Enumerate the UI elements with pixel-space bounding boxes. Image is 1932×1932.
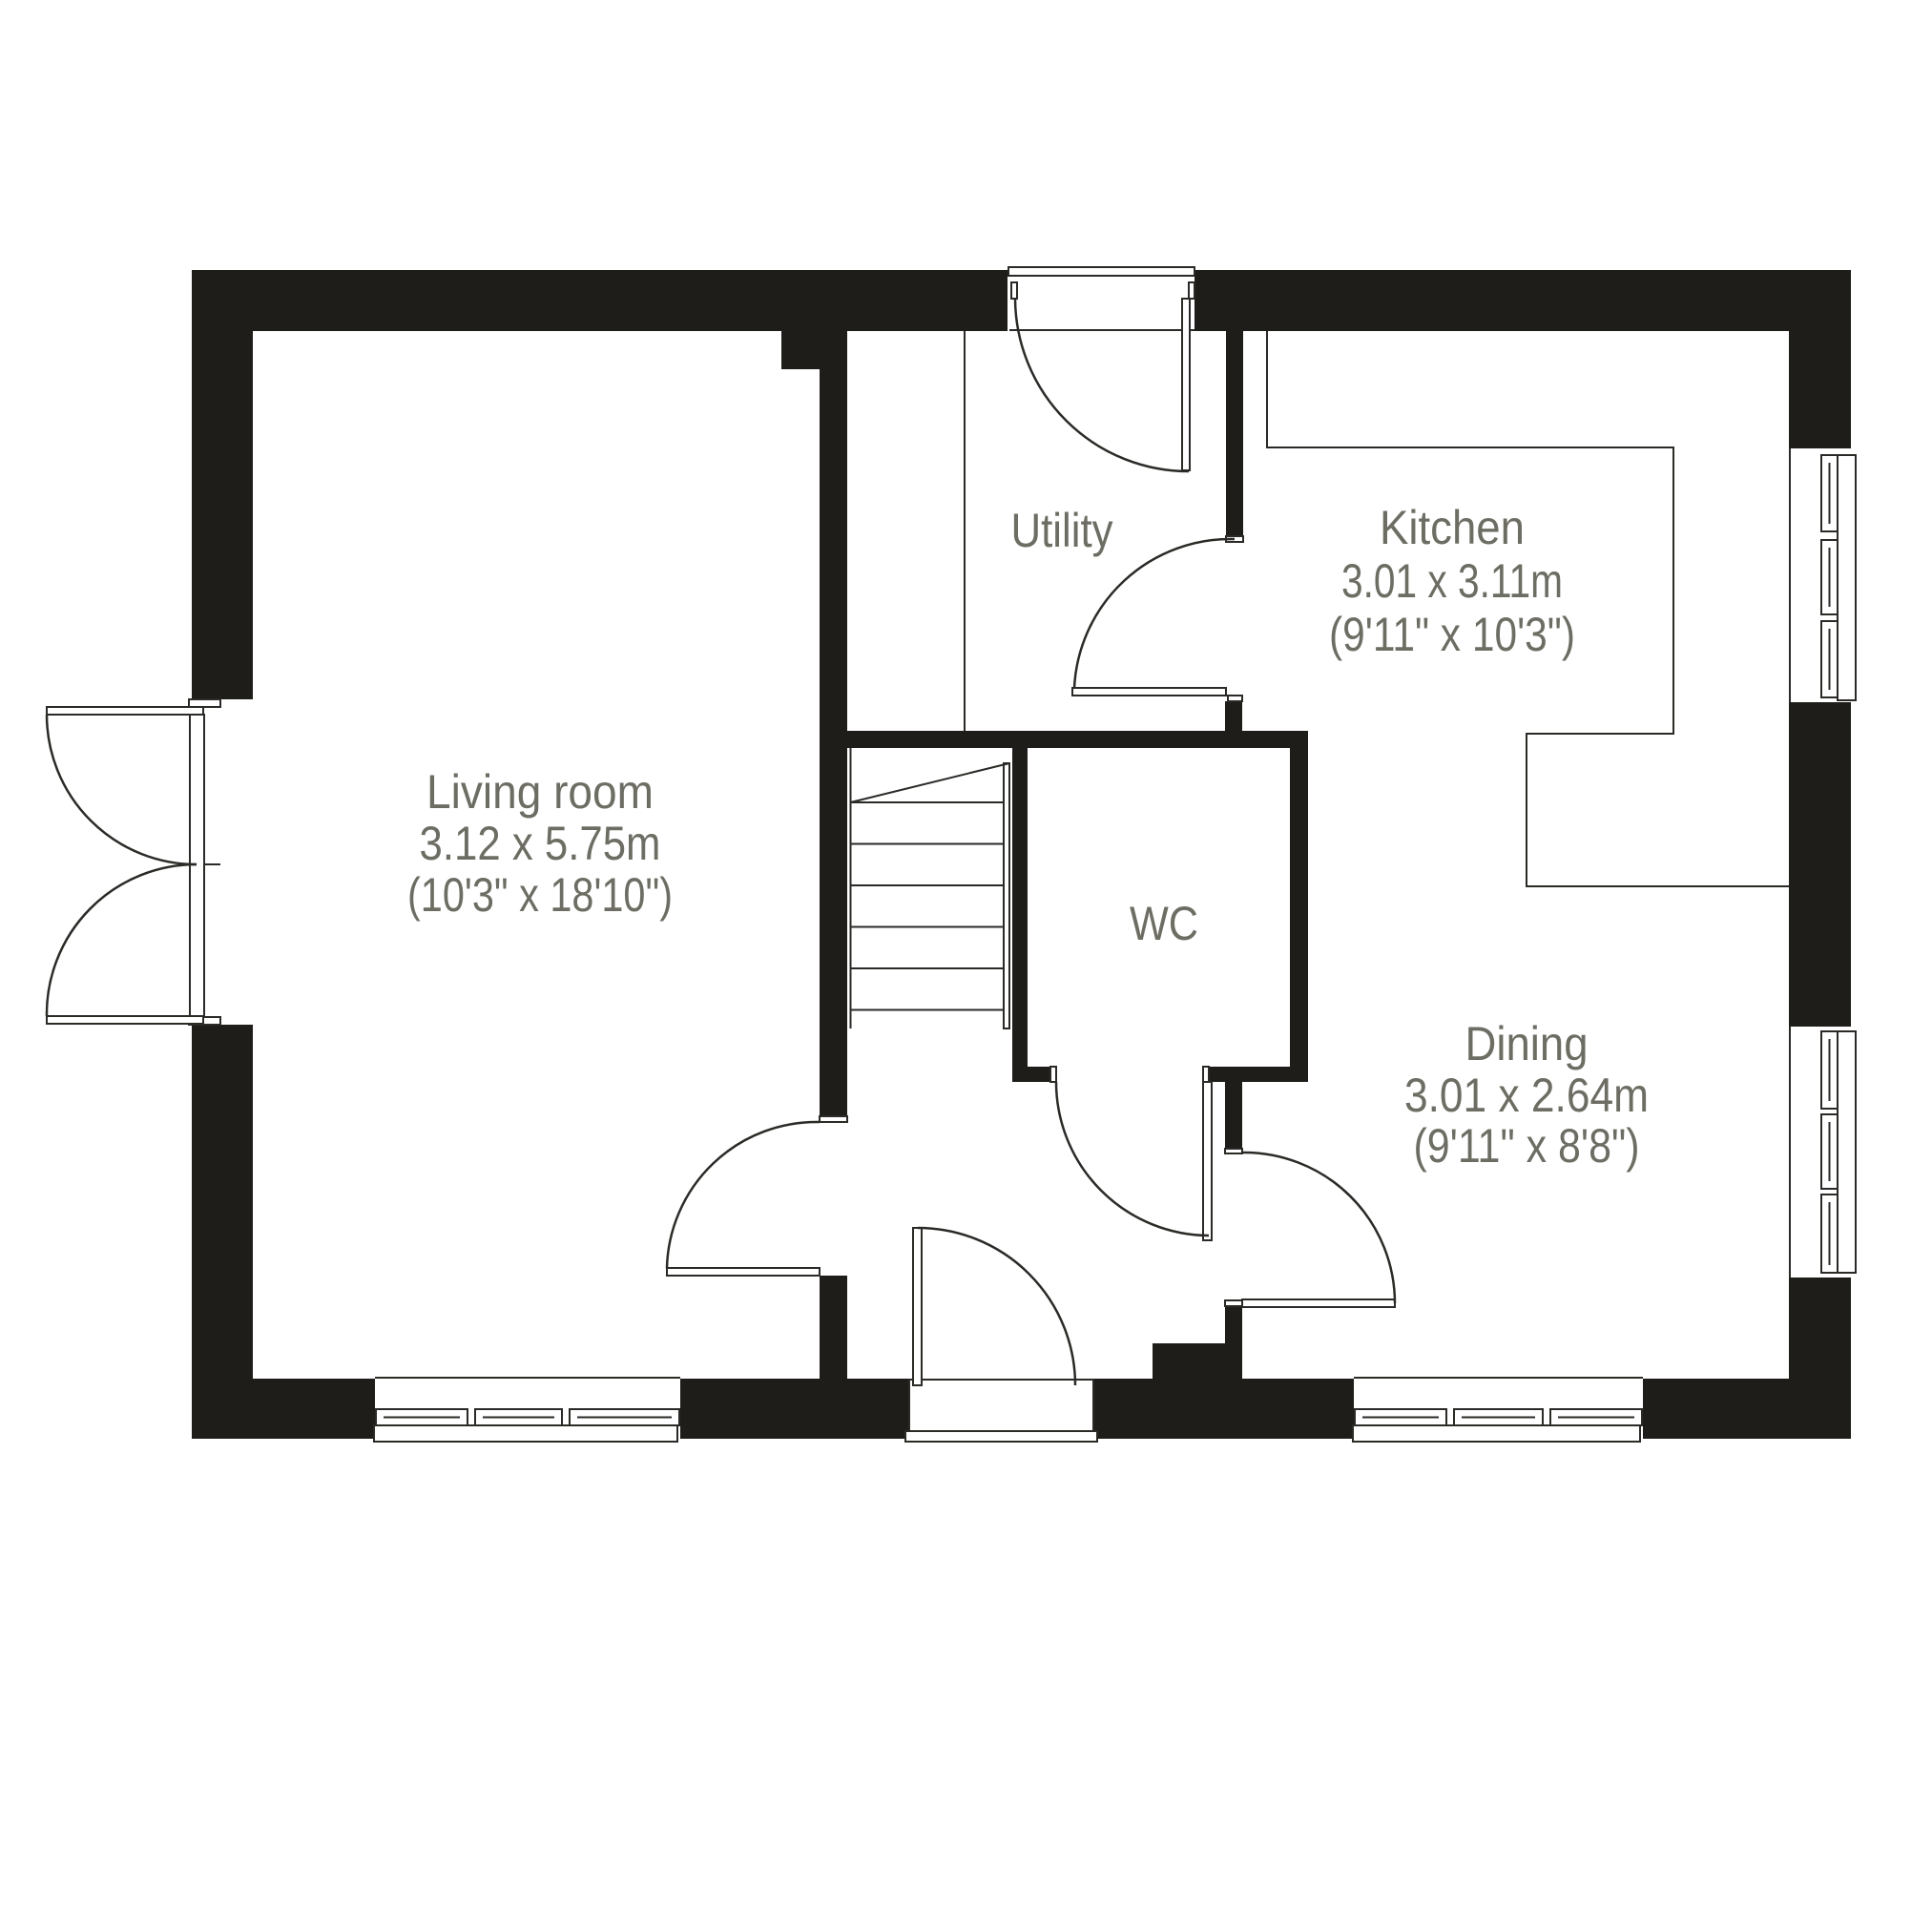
svg-text:Dining: Dining: [1465, 1017, 1589, 1070]
svg-text:Kitchen: Kitchen: [1380, 501, 1525, 554]
svg-text:Utility: Utility: [1011, 504, 1113, 557]
svg-text:Living room: Living room: [426, 765, 654, 819]
svg-text:(9'11" x 8'8"): (9'11" x 8'8"): [1414, 1119, 1640, 1173]
svg-text:(10'3" x 18'10"): (10'3" x 18'10"): [407, 868, 673, 922]
svg-text:WC: WC: [1130, 897, 1198, 950]
svg-text:3.01 x 3.11m: 3.01 x 3.11m: [1341, 554, 1563, 608]
svg-text:3.12 x 5.75m: 3.12 x 5.75m: [420, 817, 661, 870]
svg-text:3.01 x 2.64m: 3.01 x 2.64m: [1404, 1069, 1649, 1122]
svg-text:(9'11" x 10'3"): (9'11" x 10'3"): [1329, 608, 1575, 661]
